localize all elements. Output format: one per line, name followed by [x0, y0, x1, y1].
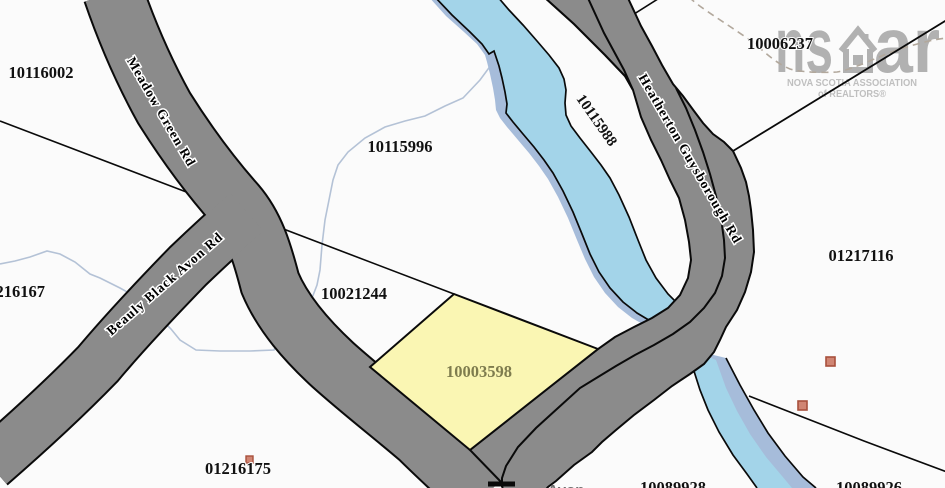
- svg-text:10115996: 10115996: [367, 137, 432, 156]
- svg-text:10089928: 10089928: [640, 478, 706, 488]
- svg-text:10089926: 10089926: [836, 478, 902, 488]
- svg-text:of REALTORS®: of REALTORS®: [818, 89, 887, 100]
- svg-text:01216167: 01216167: [0, 282, 45, 301]
- svg-text:10021244: 10021244: [321, 284, 387, 303]
- svg-text:01217116: 01217116: [828, 246, 893, 265]
- svg-text:10003598: 10003598: [446, 362, 512, 381]
- svg-text:NOVA SCOTIA ASSOCIATION: NOVA SCOTIA ASSOCIATION: [787, 78, 917, 89]
- svg-text:01216175: 01216175: [205, 459, 271, 478]
- svg-text:Avon: Avon: [548, 482, 585, 488]
- svg-text:10006237: 10006237: [747, 34, 813, 53]
- svg-text:10116002: 10116002: [8, 63, 73, 82]
